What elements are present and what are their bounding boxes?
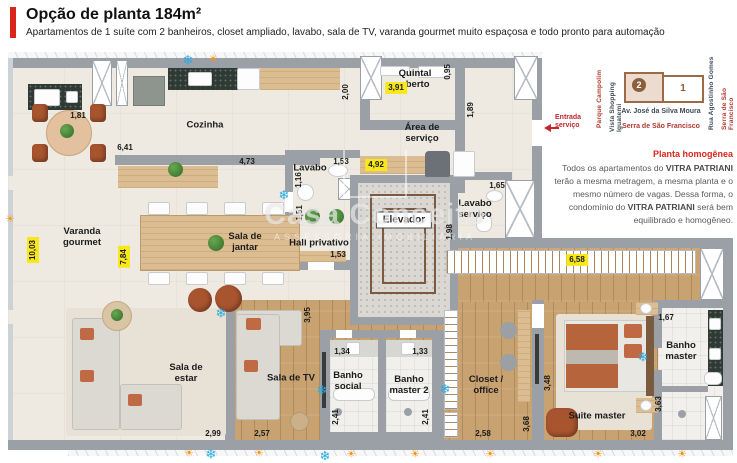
chair xyxy=(32,104,48,122)
plant xyxy=(60,124,74,138)
bed-throw xyxy=(566,350,618,364)
snowflake-icon: ❄ xyxy=(279,189,290,202)
street-label-vista-shopping: Vista Shopping Iguatemi xyxy=(609,52,623,132)
room-label-lavabo-servico: Lavabo serviço xyxy=(452,199,498,221)
suite-door xyxy=(532,304,544,328)
chair xyxy=(148,272,170,285)
sink xyxy=(709,348,721,360)
chair xyxy=(148,202,170,215)
sun-icon: ☀ xyxy=(254,449,264,460)
office-chair xyxy=(500,322,517,339)
sun-icon: ☀ xyxy=(593,450,603,461)
street-label-parque-campolim: Parque Campolim xyxy=(596,58,603,128)
page-title: Opção de planta 184m² xyxy=(26,6,201,24)
column-shaft xyxy=(705,396,722,440)
bottom-glazing xyxy=(68,449,733,456)
chair xyxy=(186,202,208,215)
pillow xyxy=(624,324,642,338)
measurement: 2,41 xyxy=(422,409,430,425)
page-subtitle: Apartamentos de 1 suíte com 2 banheiros,… xyxy=(26,27,665,38)
sun-icon: ☀ xyxy=(346,450,356,461)
washing-machine xyxy=(425,151,450,177)
measurement: 1,53 xyxy=(333,158,349,166)
pillow xyxy=(128,394,142,406)
snowflake-icon: ❄ xyxy=(440,383,451,396)
grill xyxy=(66,91,78,103)
chair xyxy=(186,272,208,285)
sun-icon: ☀ xyxy=(5,215,15,226)
measurement: 1,53 xyxy=(330,251,346,259)
measurement: 3,02 xyxy=(630,430,646,438)
info-text: Todos os apartamentos do xyxy=(562,163,666,173)
column-shaft xyxy=(92,60,112,106)
snowflake-icon: ❄ xyxy=(638,351,649,364)
plant xyxy=(305,209,320,224)
room-label-banho-master2: Banho master 2 xyxy=(385,375,433,397)
street-label-av-jose: Av. José da Silva Moura xyxy=(616,108,706,115)
room-label-varanda: Varanda gourmet xyxy=(51,227,113,249)
room-label-hall: Hall privativo xyxy=(274,239,364,250)
measurement: 2,57 xyxy=(254,430,270,438)
snowflake-icon: ❄ xyxy=(206,448,217,461)
info-brand: VITRA PATRIANI xyxy=(628,202,695,212)
chair xyxy=(90,144,106,162)
measurement: 0,95 xyxy=(444,64,452,80)
measurement: 1,98 xyxy=(446,224,454,240)
pillow xyxy=(244,360,258,372)
elevator-label: Elevador xyxy=(376,212,432,229)
entrada-arrow-icon xyxy=(544,124,551,132)
snowflake-icon: ❄ xyxy=(317,384,328,397)
measurement: 2,41 xyxy=(332,409,340,425)
shower-head xyxy=(404,408,412,416)
measurement-highlight: 3,91 xyxy=(385,82,407,94)
measurement: 1,34 xyxy=(334,348,350,356)
door xyxy=(336,330,352,338)
measurement: 1,51 xyxy=(296,205,304,221)
street-label-serra-bottom: Serra de São Francisco xyxy=(616,123,706,130)
fridge xyxy=(133,76,165,106)
measurement: 1,67 xyxy=(658,314,674,322)
tower-1-footprint: 1 xyxy=(662,75,704,103)
info-brand: VITRA PATRIANI xyxy=(666,163,733,173)
measurement: 3,48 xyxy=(544,375,552,391)
balcony-window xyxy=(8,58,13,176)
room-label-servico: Área de serviço xyxy=(396,123,448,145)
measurement-highlight: 6,58 xyxy=(566,254,588,266)
minimap: ☀ Parque Campolim Vista Shopping Iguatem… xyxy=(556,42,736,144)
room-label-estar: Sala de estar xyxy=(163,363,209,385)
room-label-closet: Closet / office xyxy=(463,375,509,397)
toilet xyxy=(704,372,722,385)
tower-2-number: 2 xyxy=(632,78,646,92)
measurement: 3,95 xyxy=(304,307,312,323)
snowflake-icon: ❄ xyxy=(320,450,331,463)
room-label-suite: Suite master xyxy=(552,412,642,423)
service-door xyxy=(532,120,542,146)
room-label-banho-social: Banho social xyxy=(327,371,369,393)
column-shaft xyxy=(514,56,538,100)
room-label-jantar: Sala de jantar xyxy=(219,232,271,254)
info-panel: Planta homogênea Todos os apartamentos d… xyxy=(545,149,733,226)
measurement: 3,68 xyxy=(523,416,531,432)
measurement-highlight: 7,84 xyxy=(118,246,130,268)
chair xyxy=(90,104,106,122)
street-label-serra-right: Serra de São Francisco xyxy=(721,54,735,130)
measurement: 1,65 xyxy=(489,182,505,190)
wall xyxy=(723,248,733,444)
measurement: 6,41 xyxy=(117,144,133,152)
column-shaft xyxy=(505,180,535,238)
room-label-banho-master: Banho master xyxy=(659,341,703,363)
pillow xyxy=(246,318,261,330)
wall xyxy=(455,238,733,248)
info-body: Todos os apartamentos do VITRA PATRIANI … xyxy=(545,162,733,226)
room-label-tv: Sala de TV xyxy=(259,374,323,385)
kitchen-sink xyxy=(188,72,212,86)
sun-icon: ☀ xyxy=(485,450,495,461)
tv xyxy=(535,334,539,384)
measurement: 2,58 xyxy=(475,430,491,438)
wall xyxy=(654,300,733,308)
pillow xyxy=(80,370,94,382)
snowflake-icon: ❄ xyxy=(183,54,194,67)
lamp xyxy=(640,303,652,314)
sun-icon: ☀ xyxy=(208,55,218,66)
column-shaft xyxy=(360,56,382,100)
measurement: 4,73 xyxy=(239,158,255,166)
info-title: Planta homogênea xyxy=(545,149,733,159)
chair xyxy=(262,202,284,215)
shoe-shelf xyxy=(444,412,458,438)
page: Opção de planta 184m² Apartamentos de 1 … xyxy=(0,0,737,463)
wall xyxy=(660,386,708,392)
plant xyxy=(168,162,183,177)
sun-icon: ☀ xyxy=(677,450,687,461)
stove xyxy=(237,68,260,90)
plant xyxy=(329,209,344,224)
office-chair xyxy=(500,354,517,371)
column-shaft xyxy=(700,248,724,300)
lamp xyxy=(640,400,652,411)
measurement: 1,16 xyxy=(295,172,303,188)
measurement-highlight: 10,03 xyxy=(27,237,39,263)
chair xyxy=(32,144,48,162)
wall xyxy=(320,432,444,440)
pouf xyxy=(188,288,212,312)
pouf xyxy=(290,412,309,431)
shower-head xyxy=(678,410,686,418)
measurement: 1,33 xyxy=(412,348,428,356)
sun-icon: ☀ xyxy=(410,450,420,461)
measurement-highlight: 4,92 xyxy=(365,159,387,171)
street-label-rua-agostinho: Rua Agostinho Gomes xyxy=(708,54,715,130)
sofa xyxy=(120,384,182,430)
measurement: 2,99 xyxy=(205,430,221,438)
measurement: 3,63 xyxy=(655,396,663,412)
header-accent-bar xyxy=(10,7,16,38)
sink xyxy=(709,318,721,330)
kitchen-cabinet xyxy=(260,68,340,90)
desk xyxy=(518,310,530,402)
laundry-tank xyxy=(453,151,475,177)
chair xyxy=(262,272,284,285)
pillow xyxy=(80,328,94,340)
wall xyxy=(225,300,235,440)
balcony-window xyxy=(8,190,13,310)
room-label-lavabo: Lavabo xyxy=(282,164,338,175)
chair xyxy=(224,202,246,215)
chair xyxy=(224,272,246,285)
door xyxy=(400,330,416,338)
measurement: 2,00 xyxy=(342,84,350,100)
room-label-cozinha: Cozinha xyxy=(165,121,245,132)
balcony-window xyxy=(8,324,13,440)
wall xyxy=(8,440,733,450)
column-shaft xyxy=(116,60,128,106)
snowflake-icon: ❄ xyxy=(216,307,227,320)
measurement: 1,81 xyxy=(70,112,86,120)
sun-icon: ☀ xyxy=(184,449,194,460)
measurement: 1,89 xyxy=(467,102,475,118)
plant xyxy=(111,309,123,321)
